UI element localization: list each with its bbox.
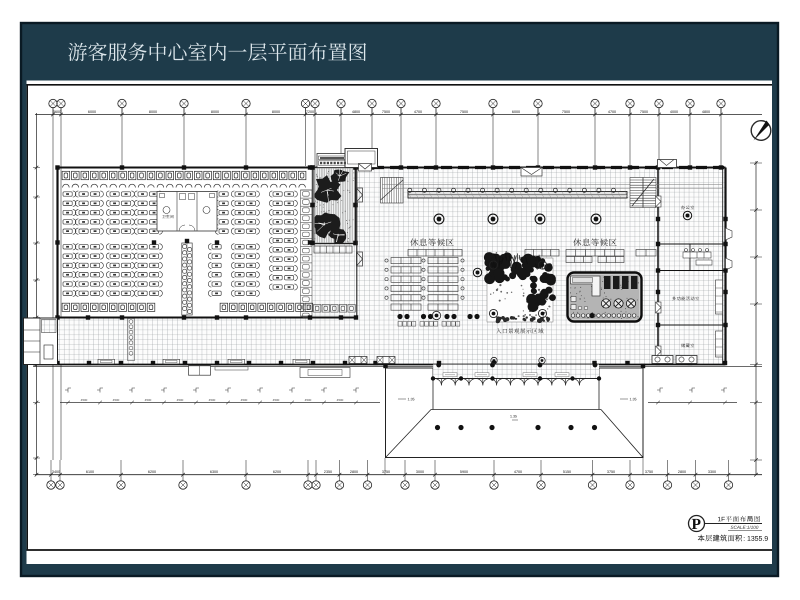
svg-text:3750: 3750 bbox=[382, 470, 390, 474]
svg-text:4500: 4500 bbox=[337, 398, 344, 402]
svg-text:4500: 4500 bbox=[177, 398, 184, 402]
svg-text:4500: 4500 bbox=[113, 398, 120, 402]
svg-text:4500: 4500 bbox=[145, 398, 152, 402]
svg-text:4500: 4500 bbox=[209, 398, 216, 402]
svg-text:7500: 7500 bbox=[460, 110, 468, 114]
svg-text:5150: 5150 bbox=[563, 470, 571, 474]
svg-text:3750: 3750 bbox=[607, 470, 615, 474]
svg-text:4500: 4500 bbox=[81, 398, 88, 402]
svg-text:6100: 6100 bbox=[86, 470, 94, 474]
svg-text:4500: 4500 bbox=[241, 398, 248, 402]
svg-text:2800: 2800 bbox=[678, 470, 686, 474]
svg-text:7500: 7500 bbox=[382, 110, 390, 114]
svg-text:6000: 6000 bbox=[88, 110, 96, 114]
svg-text:2350: 2350 bbox=[324, 470, 332, 474]
svg-text:7200: 7200 bbox=[306, 110, 314, 114]
svg-text:8000: 8000 bbox=[211, 110, 219, 114]
svg-text:4500: 4500 bbox=[273, 398, 280, 402]
svg-text:7500: 7500 bbox=[562, 110, 570, 114]
svg-text:3600: 3600 bbox=[53, 110, 61, 114]
svg-text:4700: 4700 bbox=[414, 110, 422, 114]
svg-text:6000: 6000 bbox=[512, 110, 520, 114]
svg-text:4500: 4500 bbox=[305, 398, 312, 402]
svg-text:4800: 4800 bbox=[352, 110, 360, 114]
svg-text:3300: 3300 bbox=[708, 470, 716, 474]
svg-text:5900: 5900 bbox=[460, 470, 468, 474]
svg-text:8000: 8000 bbox=[272, 110, 280, 114]
svg-text:4800: 4800 bbox=[702, 110, 710, 114]
svg-text:8000: 8000 bbox=[149, 110, 157, 114]
svg-text:2800: 2800 bbox=[350, 470, 358, 474]
svg-text:7500: 7500 bbox=[640, 110, 648, 114]
svg-text:4000: 4000 bbox=[670, 110, 678, 114]
svg-text:4700: 4700 bbox=[608, 110, 616, 114]
svg-text:3000: 3000 bbox=[416, 470, 424, 474]
svg-text:3750: 3750 bbox=[645, 470, 653, 474]
svg-text:6200: 6200 bbox=[273, 470, 281, 474]
svg-text:3400: 3400 bbox=[52, 470, 60, 474]
svg-text:6300: 6300 bbox=[210, 470, 218, 474]
svg-text:6200: 6200 bbox=[148, 470, 156, 474]
svg-text:4700: 4700 bbox=[514, 470, 522, 474]
